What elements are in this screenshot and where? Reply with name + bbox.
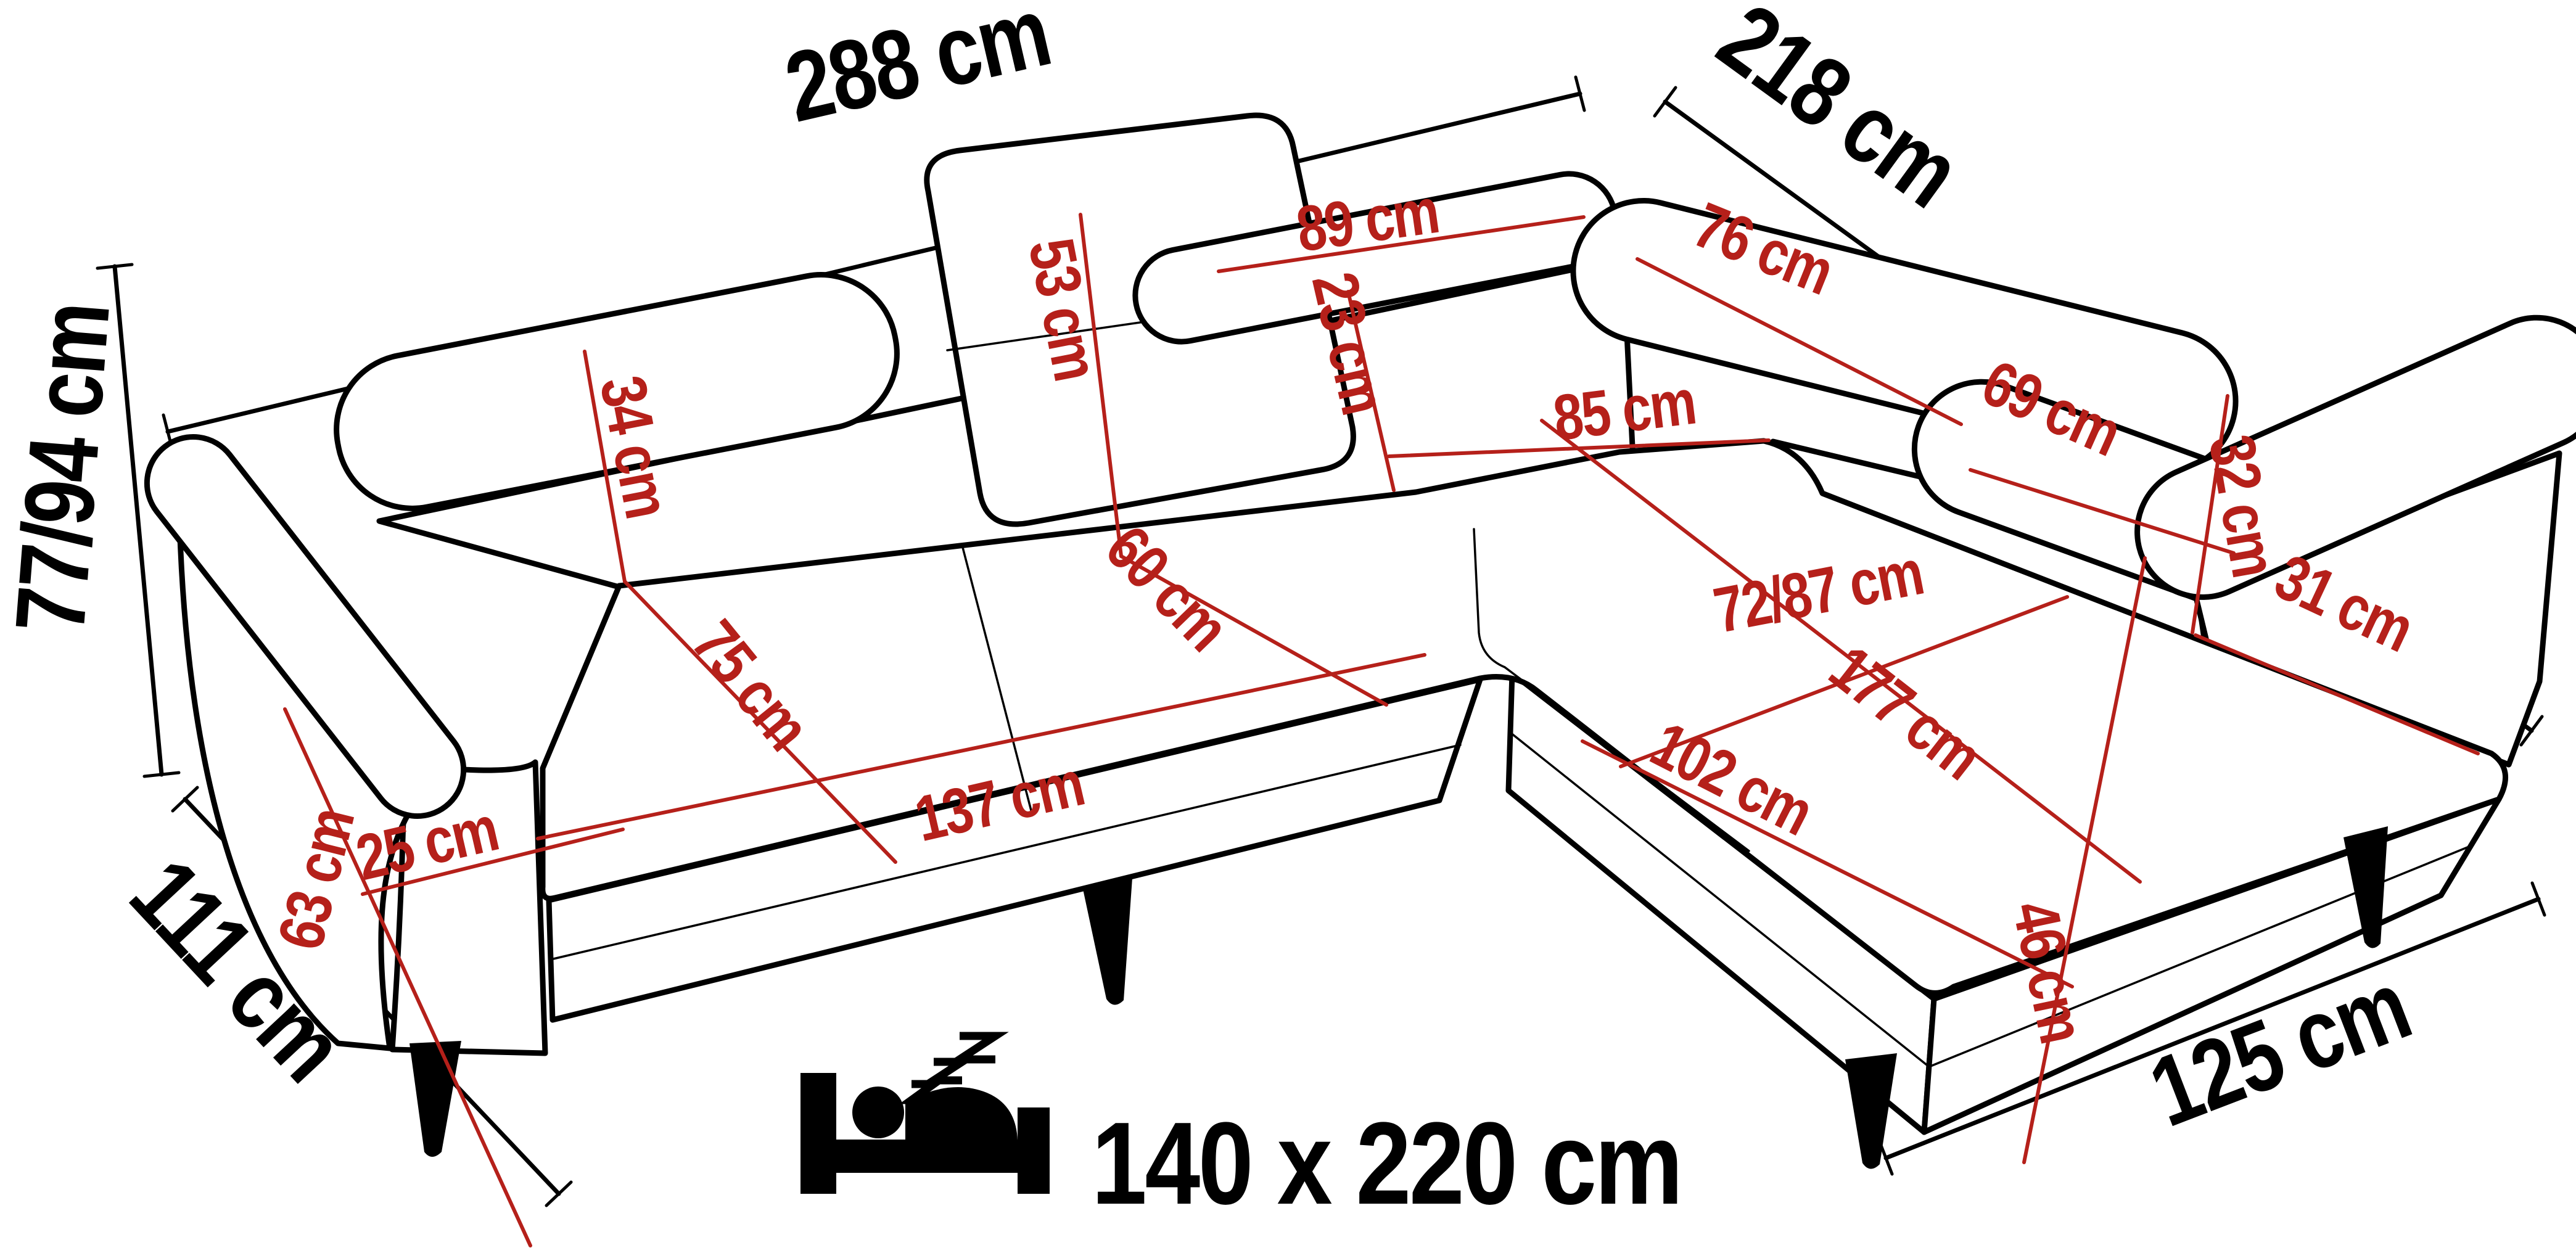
bed-headboard [800,1073,836,1194]
zzz-medium [934,1062,962,1080]
sleeping-bed-icon [800,1036,1050,1194]
sofa-leg [1083,878,1132,1005]
sofa-leg [1845,1053,1897,1169]
sleeper-head [852,1087,904,1138]
label-overall-depth-right: 218 cm [1699,0,1978,228]
sofa-leg [409,1041,461,1157]
sleeping-area: 140 x 220 cm [800,1036,1681,1229]
label-overall-width: 288 cm [776,0,1059,143]
label-sleeping-size: 140 x 220 cm [1092,1098,1681,1229]
sofa-dimensions-diagram: 288 cm 218 cm 77/94 cm 111 cm 125 cm 89 … [0,0,2576,1253]
zzz-large [960,1036,995,1059]
bed-base [800,1140,1050,1173]
label-overall-height: 77/94 cm [0,299,131,636]
diagram-canvas: 288 cm 218 cm 77/94 cm 111 cm 125 cm 89 … [0,0,2576,1253]
